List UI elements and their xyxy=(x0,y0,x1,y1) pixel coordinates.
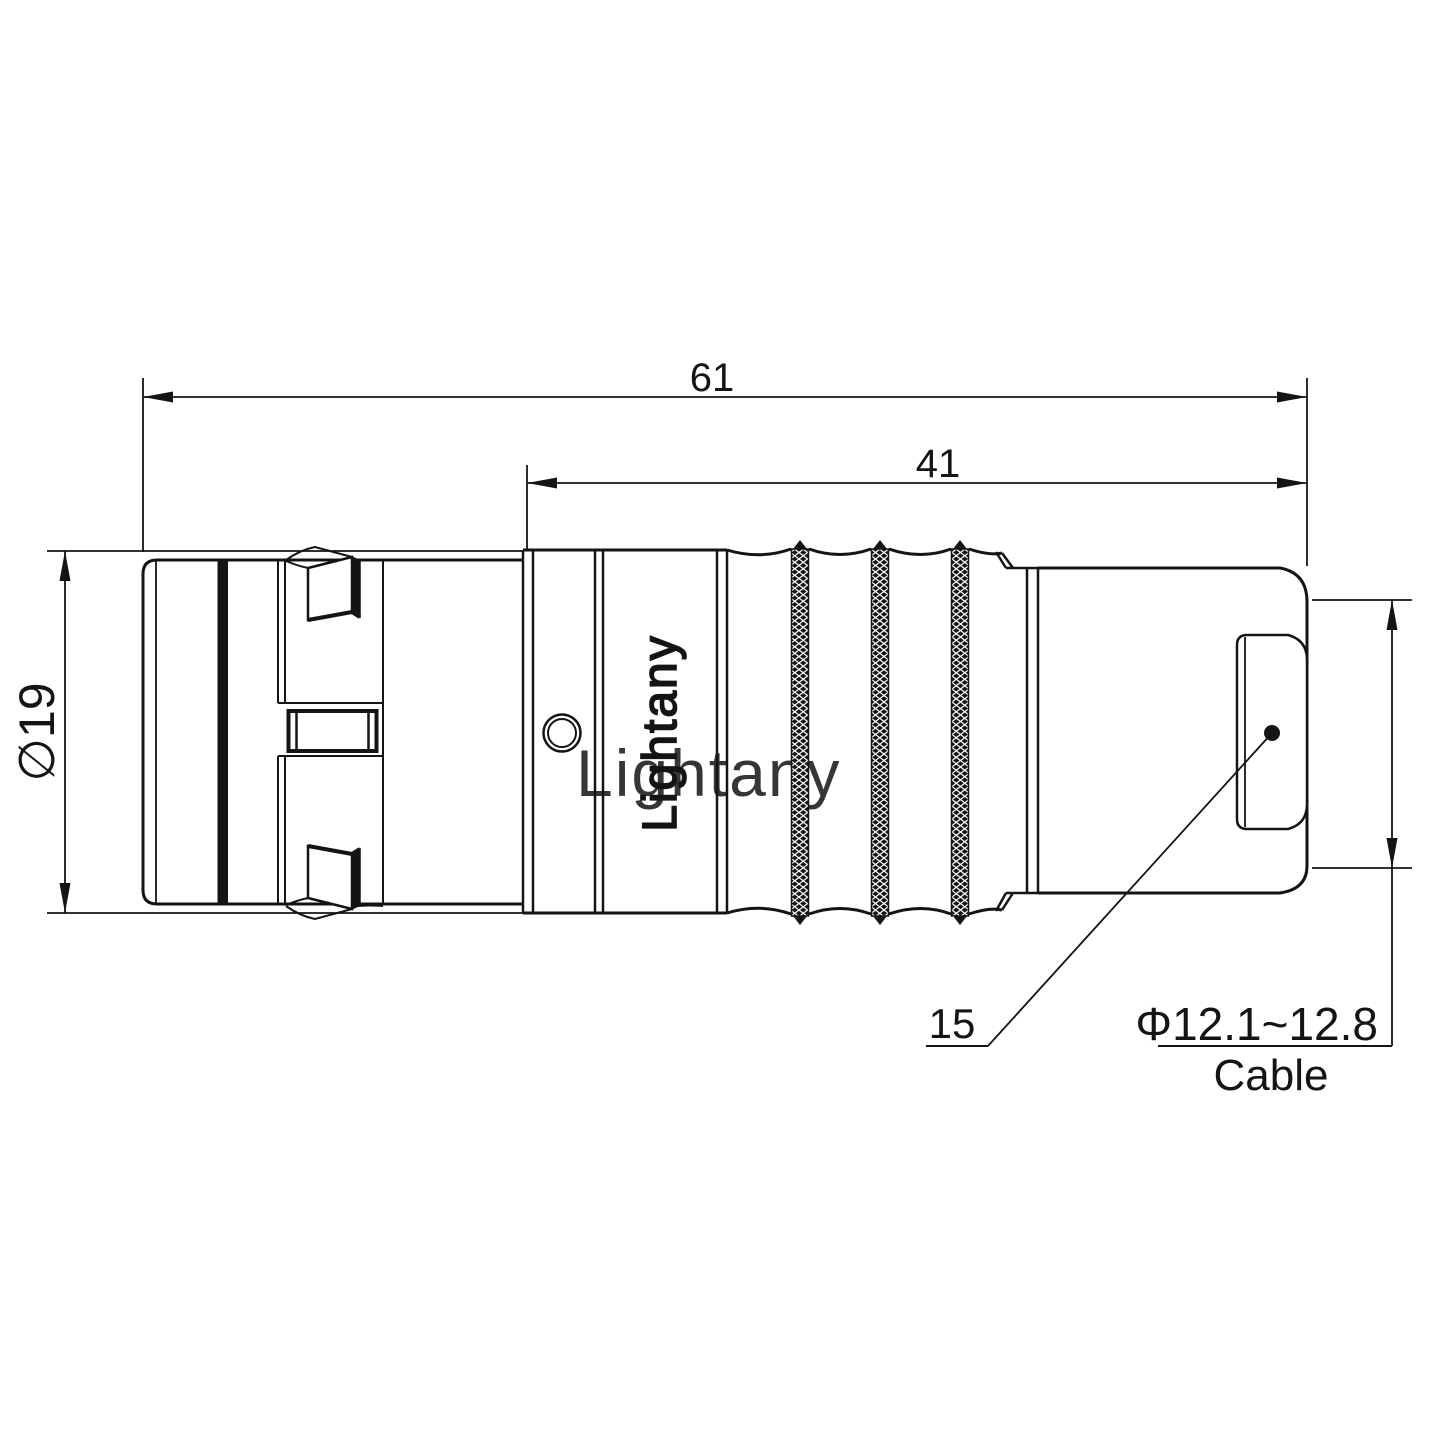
connector-technical-drawing: Lightany Li xyxy=(0,0,1440,1440)
front-shell-black-band xyxy=(218,560,229,904)
dia-19-label: ∅19 xyxy=(9,682,65,781)
cable-range-label: Φ12.1~12.8 xyxy=(1135,998,1378,1050)
dim-61-arrow-right xyxy=(1277,392,1307,403)
cable-word-label: Cable xyxy=(1214,1051,1329,1100)
end-collar-lines xyxy=(1027,568,1038,893)
cable-dim-arrow-top xyxy=(1387,600,1398,630)
dim-41: 41 xyxy=(527,442,1307,550)
ring-section-lines xyxy=(595,550,603,913)
bottom-clip-side xyxy=(352,849,360,909)
dia-19-arrow-top xyxy=(60,551,71,581)
top-clip-side xyxy=(352,557,360,617)
latch-window xyxy=(289,711,377,751)
connector-body: Lightany xyxy=(143,540,1307,925)
cable-dim-extension-lines xyxy=(1312,600,1412,868)
dim-diameter-19: ∅19 xyxy=(9,551,523,913)
part-15-label: 15 xyxy=(929,1000,976,1047)
taper-lines xyxy=(996,552,1038,911)
knurl-band-3 xyxy=(952,549,969,916)
part-15-leader-dot xyxy=(1264,725,1280,741)
bottom-clip-face xyxy=(308,846,352,909)
collar-step-lines xyxy=(523,550,533,913)
dim-41-arrow-left xyxy=(527,478,557,489)
dim-61-extension-lines xyxy=(143,378,1307,566)
top-clip-face xyxy=(308,557,352,620)
ring-hole-outer xyxy=(544,715,581,752)
dim-41-arrow-right xyxy=(1277,478,1307,489)
top-clip xyxy=(286,547,383,620)
dim-41-label: 41 xyxy=(916,442,961,486)
cable-dim-arrow-bottom xyxy=(1387,838,1398,868)
dim-61: 61 xyxy=(143,356,1307,566)
dia-19-arrow-bottom xyxy=(60,883,71,913)
dim-61-arrow-left xyxy=(143,392,173,403)
technical-drawing-page: Lightany Li xyxy=(0,0,1440,1440)
knurl-band-1 xyxy=(792,549,809,916)
knurl-band-2 xyxy=(872,549,889,916)
dim-61-label: 61 xyxy=(690,356,735,400)
shell-brand-text: Lightany xyxy=(634,634,687,831)
bottom-clip xyxy=(286,846,383,919)
knurl-section-lines xyxy=(717,550,727,913)
